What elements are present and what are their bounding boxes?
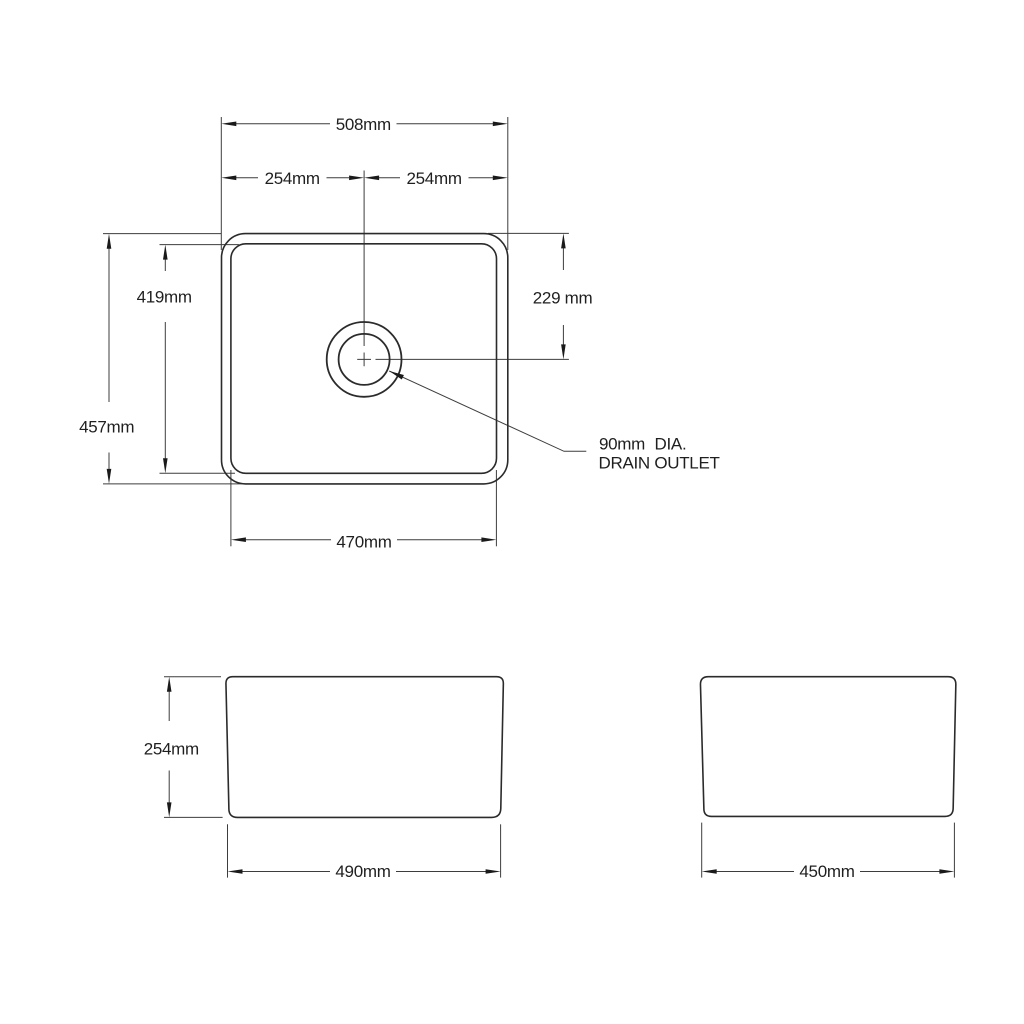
svg-text:DRAIN OUTLET: DRAIN OUTLET [599, 453, 720, 472]
svg-text:508mm: 508mm [336, 115, 391, 134]
svg-text:470mm: 470mm [336, 532, 391, 551]
svg-text:490mm: 490mm [335, 862, 390, 881]
svg-text:DIA.: DIA. [655, 434, 687, 453]
svg-text:254mm: 254mm [265, 169, 320, 188]
svg-text:457mm: 457mm [79, 417, 134, 436]
svg-text:254mm: 254mm [144, 739, 199, 758]
svg-text:229 mm: 229 mm [533, 288, 593, 307]
svg-text:419mm: 419mm [137, 288, 192, 307]
svg-text:90mm: 90mm [599, 434, 645, 453]
svg-text:254mm: 254mm [407, 169, 462, 188]
svg-text:450mm: 450mm [799, 862, 854, 881]
